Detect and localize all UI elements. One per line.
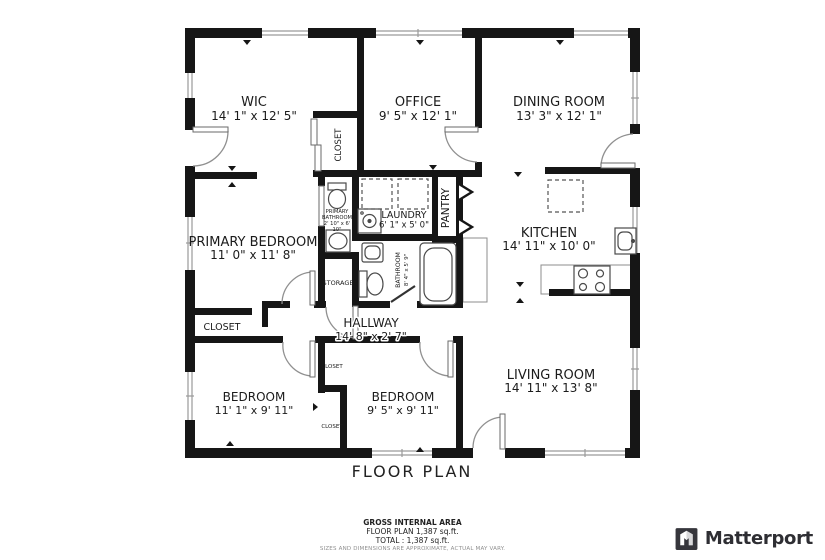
- primary-bathroom-sink-icon: [326, 230, 350, 252]
- bedroom-right-door: [420, 341, 453, 377]
- room-label-pantry: PANTRY: [440, 187, 452, 228]
- room-label-primary-bedroom: PRIMARY BEDROOM11' 0" x 11' 8": [189, 235, 318, 262]
- bathroom-toilet-icon: [359, 271, 383, 297]
- room-label-bedroom-left: BEDROOM11' 1" x 9' 11": [215, 390, 294, 417]
- matterport-wordmark: Matterport: [705, 528, 813, 549]
- stove-icon: [574, 266, 610, 294]
- room-label-closet-wic: CLOSET: [334, 128, 344, 162]
- room-label-primary-bathroom: PRIMARYBATHROOM2' 10" x 6'10": [322, 209, 352, 233]
- primary-bedroom-door: [282, 271, 315, 305]
- matterport-logo: Matterport: [674, 526, 813, 551]
- room-label-wic: WIC14' 1" x 12' 5": [211, 95, 297, 123]
- plan-title: FLOOR PLAN: [352, 462, 473, 481]
- bedroom-left-door: [283, 341, 315, 377]
- office-door: [445, 127, 478, 162]
- bathroom-sink-icon: [362, 243, 383, 262]
- room-label-kitchen: KITCHEN14' 11" x 10' 0": [502, 226, 595, 253]
- primary-bathroom-toilet-icon: [328, 183, 346, 209]
- room-label-storage: STORAGE: [323, 279, 354, 287]
- wic-exterior-door: [193, 127, 228, 166]
- room-label-dining-room: DINING ROOM13' 3" x 12' 1": [513, 95, 605, 123]
- room-label-office: OFFICE9' 5" x 12' 1": [379, 95, 457, 123]
- living-exterior-door: [473, 414, 505, 449]
- room-label-closet-bottom: CLOSET: [321, 424, 343, 430]
- dining-exterior-door: [601, 134, 635, 168]
- floor-plan-page: WIC14' 1" x 12' 5"OFFICE9' 5" x 12' 1"DI…: [0, 0, 825, 560]
- room-label-living-room: LIVING ROOM14' 11" x 13' 8": [504, 368, 597, 395]
- room-label-closet-primary: CLOSET: [204, 322, 241, 333]
- room-label-closet-top: CLOSET: [321, 364, 343, 370]
- floor-plan-drawing: WIC14' 1" x 12' 5"OFFICE9' 5" x 12' 1"DI…: [0, 0, 825, 560]
- wic-closet-sliding-doors: [311, 119, 321, 171]
- room-label-bedroom-right: BEDROOM9' 5" x 9' 11": [367, 390, 439, 417]
- washer-icon: [358, 209, 381, 233]
- room-label-laundry: LAUNDRY6' 1" x 5' 0": [379, 210, 429, 231]
- refrigerator-dashed-icon: [548, 180, 583, 212]
- room-label-hallway: HALLWAY14' 8" x 2' 7": [335, 316, 407, 343]
- bathtub-icon: [420, 243, 456, 305]
- kitchen-sink-icon: [615, 228, 636, 254]
- room-label-bathroom: BATHROOM8' 4" x 5' 9": [395, 252, 410, 288]
- laundry-appliance-dashed-icon: [362, 179, 428, 209]
- matterport-cube-icon: [674, 526, 699, 551]
- room-labels: WIC14' 1" x 12' 5"OFFICE9' 5" x 12' 1"DI…: [189, 95, 606, 430]
